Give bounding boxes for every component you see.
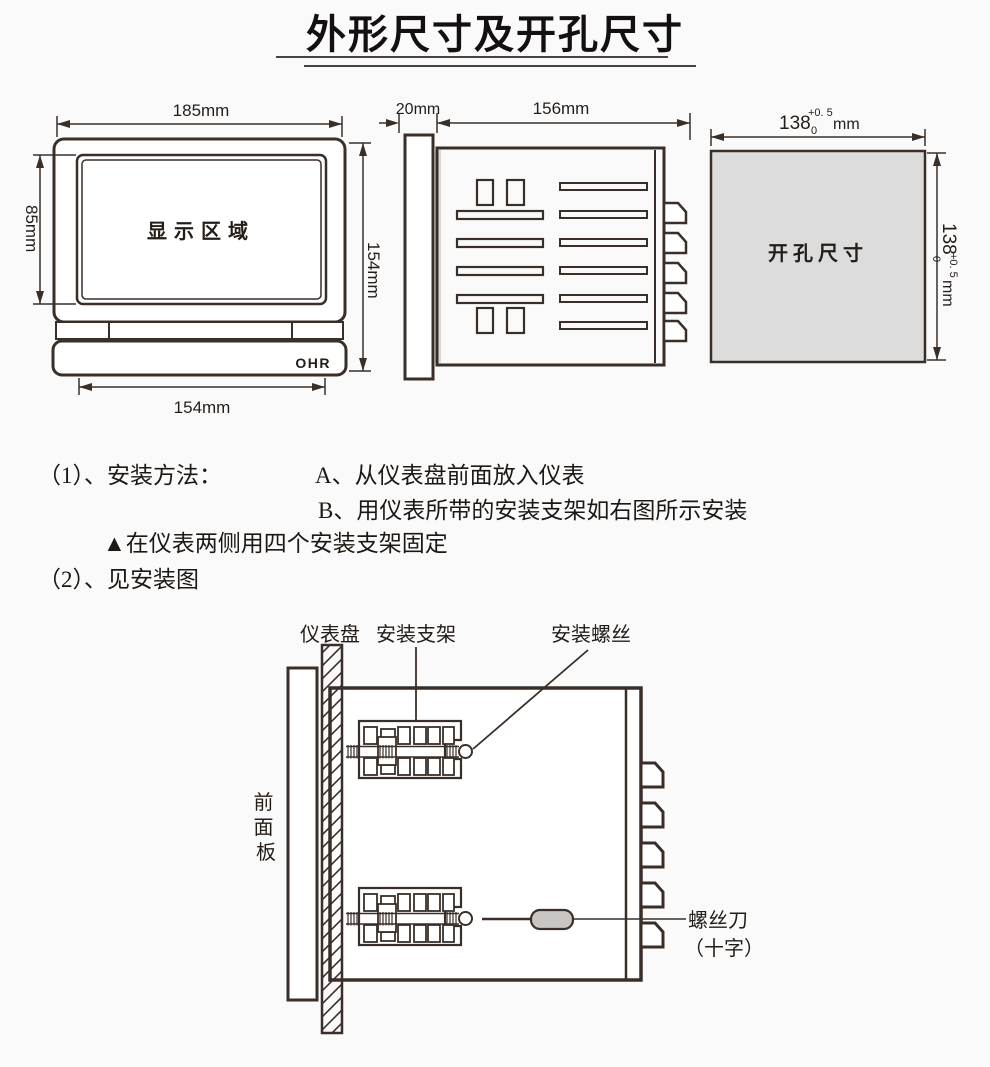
bracket-label: 安装支架: [376, 623, 456, 646]
brand-logo: OHR: [295, 355, 331, 371]
front-lower-strip: [56, 322, 343, 339]
side-vent-slots-right: [560, 183, 647, 329]
instruction-step-a: A、从仪表盘前面放入仪表: [315, 456, 585, 490]
screwdriver-type-label: （十字）: [684, 937, 764, 960]
instruction-note: ▲在仪表两侧用四个安装支架固定: [103, 524, 448, 558]
cutout-width-tol-lower: 0: [811, 125, 817, 137]
cutout-width-tol-upper: +0. 5: [808, 107, 833, 119]
bezel-depth-dim: 20mm: [396, 101, 440, 118]
front-bottom-width-dim: 154mm: [174, 398, 231, 417]
terminal-tab: [641, 883, 663, 907]
dim-185mm: 185mm: [57, 101, 342, 137]
terminal-tab: [664, 233, 686, 253]
cutout-width-value: 138: [779, 113, 811, 134]
cutout-height-tol-upper: +0. 5: [947, 253, 959, 278]
cutout-height-tol-lower: 0: [930, 256, 942, 262]
front-panel-char: 板: [256, 841, 276, 864]
side-body: [437, 148, 664, 365]
side-bezel: [405, 135, 433, 379]
display-area-label: 显示区域: [147, 219, 255, 243]
dim-cutout-height: 138 +0. 5 0 mm: [927, 153, 959, 360]
front-view: 显示区域 OHR 185mm 85mm: [22, 101, 383, 417]
front-panel-char: 面: [254, 817, 274, 839]
terminal-tab: [641, 803, 663, 827]
instruction-item1: （1）、安装方法：: [38, 456, 222, 490]
mounting-panel-hatched: [322, 645, 342, 1033]
screwdriver-handle: [531, 910, 573, 929]
terminal-tab: [664, 263, 686, 283]
side-view: 20mm 156mm: [379, 99, 690, 379]
terminal-tab: [664, 293, 686, 313]
cutout-height-unit: mm: [939, 280, 956, 307]
front-width-dim: 185mm: [173, 101, 230, 120]
screwdriver-label: 螺丝刀: [688, 909, 748, 932]
cutout-width-unit: mm: [833, 116, 860, 133]
dim-154mm-bottom: 154mm: [79, 378, 325, 417]
panel-label: 仪表盘: [300, 623, 360, 646]
terminal-tab: [641, 843, 663, 867]
mounting-bracket-top: [346, 721, 472, 778]
terminal-tab: [641, 923, 663, 947]
side-vent-slots-left: [457, 180, 543, 333]
dim-154mm-right: 154mm: [349, 143, 383, 371]
instruction-item2: （2）、见安装图: [38, 560, 199, 594]
body-depth-dim: 156mm: [533, 99, 590, 118]
dim-cutout-width: 138 +0. 5 0 mm: [711, 107, 925, 146]
cutout-label: 开孔尺寸: [768, 242, 868, 265]
front-height-dim: 154mm: [364, 242, 383, 299]
side-terminal-tabs: [664, 203, 686, 341]
front-panel-label: 前 面 板: [254, 791, 279, 864]
terminal-tab: [641, 763, 663, 787]
display-height-dim: 85mm: [22, 205, 41, 252]
cutout-view: 开孔尺寸 138 +0. 5 0 mm 138 +0. 5: [711, 107, 959, 362]
screw-label: 安装螺丝: [551, 623, 631, 646]
front-panel: [288, 668, 317, 1000]
instruction-step-b: B、用仪表所带的安装支架如右图所示安装: [318, 491, 747, 525]
cutout-height-value: 138: [938, 223, 959, 255]
terminal-tab: [664, 203, 686, 223]
installation-diagram: 仪表盘 安装支架 安装螺丝 前 面 板: [254, 623, 765, 1033]
mounting-bracket-bottom: [346, 888, 472, 945]
manual-page: 外形尺寸及开孔尺寸: [0, 0, 990, 1067]
front-panel-char: 前: [254, 791, 274, 814]
terminal-tab: [664, 321, 686, 341]
